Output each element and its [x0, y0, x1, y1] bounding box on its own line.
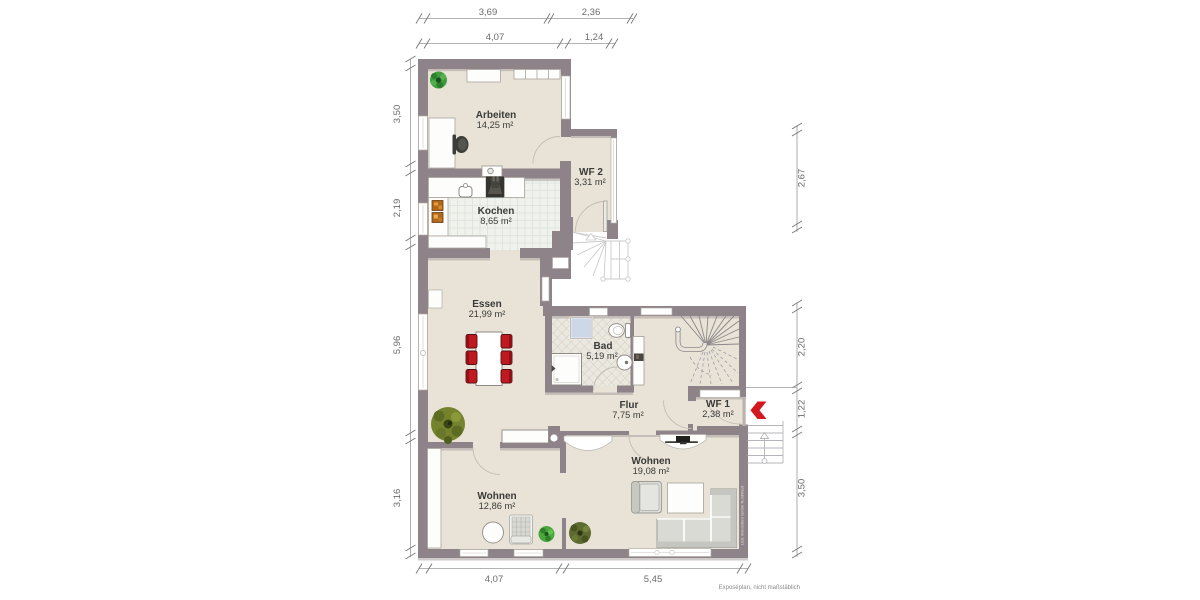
- svg-text:3,31 m²: 3,31 m²: [574, 177, 606, 187]
- svg-text:3,16: 3,16: [392, 489, 403, 508]
- svg-text:5,19 m²: 5,19 m²: [586, 351, 618, 361]
- svg-text:19,08 m²: 19,08 m²: [633, 466, 670, 476]
- svg-text:7,75 m²: 7,75 m²: [612, 410, 644, 420]
- svg-text:2,67: 2,67: [797, 169, 808, 188]
- svg-text:2,19: 2,19: [392, 199, 403, 218]
- svg-text:5,96: 5,96: [392, 336, 403, 355]
- svg-text:21,99 m²: 21,99 m²: [469, 309, 506, 319]
- svg-text:Exposéplan, nicht maßstäblich: Exposéplan, nicht maßstäblich: [719, 585, 800, 591]
- svg-text:3,69: 3,69: [479, 7, 498, 18]
- svg-text:2,38 m²: 2,38 m²: [702, 409, 734, 419]
- svg-text:12,86 m²: 12,86 m²: [479, 501, 516, 511]
- svg-text:5,45: 5,45: [644, 574, 663, 585]
- svg-text:3,50: 3,50: [392, 105, 403, 124]
- svg-text:4,07: 4,07: [485, 574, 504, 585]
- svg-text:8,65 m²: 8,65 m²: [480, 216, 512, 226]
- svg-text:2,36: 2,36: [582, 7, 601, 18]
- svg-text:4,07: 4,07: [486, 32, 505, 43]
- svg-text:2,20: 2,20: [797, 338, 808, 357]
- svg-text:1,22: 1,22: [797, 400, 808, 419]
- svg-text:LBS Immobilien GmbH NordWest: LBS Immobilien GmbH NordWest: [741, 485, 745, 545]
- svg-text:3,50: 3,50: [797, 479, 808, 498]
- svg-text:14,25 m²: 14,25 m²: [477, 120, 514, 130]
- svg-text:1,24: 1,24: [585, 32, 604, 43]
